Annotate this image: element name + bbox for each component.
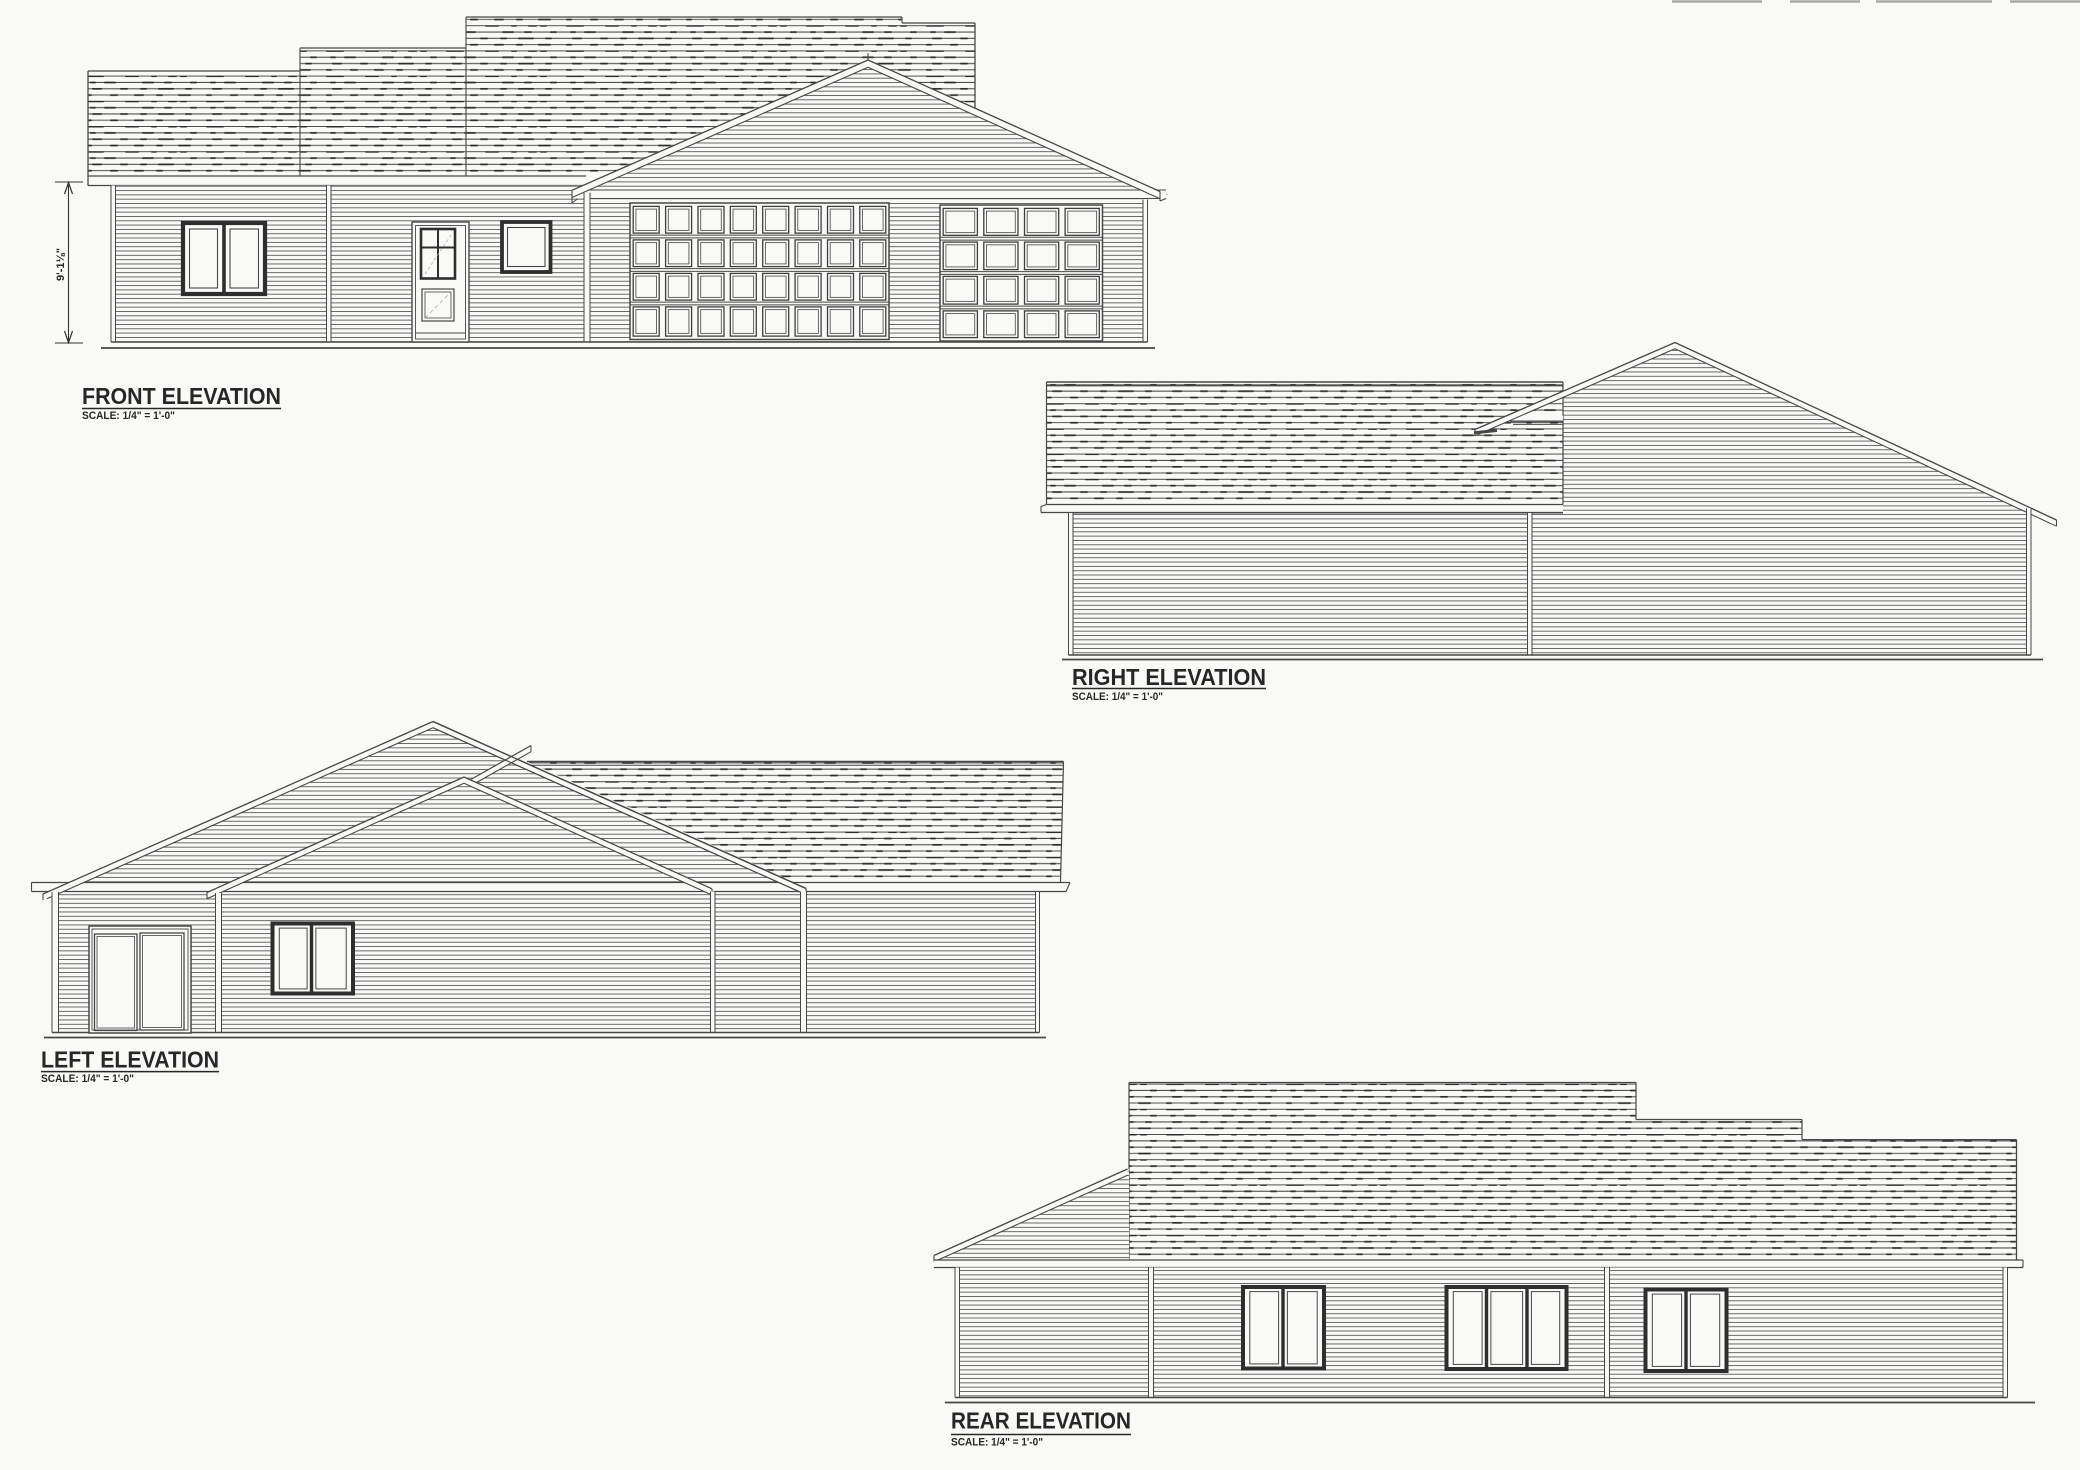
svg-text:FRONT ELEVATION: FRONT ELEVATION xyxy=(82,383,281,409)
svg-text:LEFT ELEVATION: LEFT ELEVATION xyxy=(41,1047,219,1073)
svg-text:SCALE: 1/4" = 1'-0": SCALE: 1/4" = 1'-0" xyxy=(951,1437,1043,1449)
svg-text:9'-1⅛": 9'-1⅛" xyxy=(55,248,67,281)
svg-text:SCALE: 1/4" = 1'-0": SCALE: 1/4" = 1'-0" xyxy=(41,1073,134,1085)
svg-text:SCALE: 1/4" = 1'-0": SCALE: 1/4" = 1'-0" xyxy=(1072,691,1163,703)
svg-text:SCALE: 1/4" = 1'-0": SCALE: 1/4" = 1'-0" xyxy=(82,410,175,422)
svg-text:REAR ELEVATION: REAR ELEVATION xyxy=(951,1408,1131,1434)
svg-text:RIGHT ELEVATION: RIGHT ELEVATION xyxy=(1072,664,1266,690)
